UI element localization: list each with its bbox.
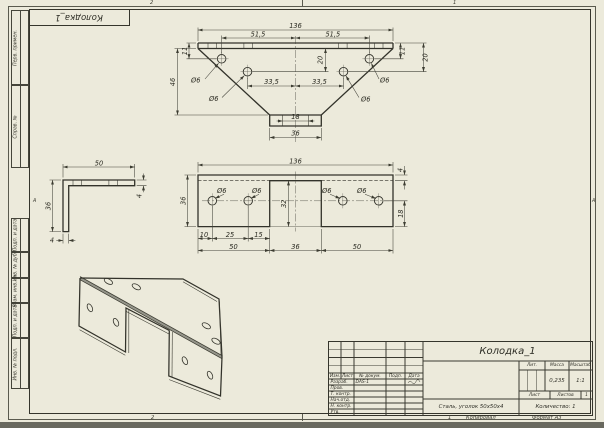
col-docnum: № докум. <box>354 373 386 379</box>
part-name: Колодка_1 <box>423 342 592 361</box>
dim-label: 25 <box>226 231 234 239</box>
row-tkontr: Т. контр. <box>331 392 351 397</box>
dim-label: 20 <box>317 56 325 64</box>
dim-label: 50 <box>353 243 361 251</box>
hole-diameter-label: Ø6 <box>216 187 226 195</box>
row-nachotd: Нач.отд. <box>331 398 351 403</box>
mass-value: 0,235 <box>545 370 569 391</box>
row-utv: Утв. <box>331 410 340 415</box>
hole-diameter-label: Ø6 <box>356 187 366 195</box>
dim-label: 36 <box>291 243 299 251</box>
dim-label: 11 <box>181 47 189 55</box>
dim-label: 15 <box>254 231 262 239</box>
dim-label: 20 <box>422 53 430 61</box>
front-view: 136 4 18 36 32 10 25 15 50 36 50 Ø6 Ø6 Ø… <box>179 157 407 253</box>
dim-label: 18 <box>397 210 405 218</box>
scale-label: Масштаб <box>569 361 592 370</box>
col-data: Дата <box>405 373 423 379</box>
col-podp: Подп. <box>386 373 405 379</box>
quantity: Количество: 1 <box>519 399 592 415</box>
dim-label: 136 <box>289 22 302 30</box>
hole-diameter-label: Ø6 <box>251 187 261 195</box>
designer-name: DAS-1 <box>356 380 370 385</box>
row-nkontr: Н. контр. <box>331 404 352 409</box>
dim-label: 33,5 <box>312 78 327 86</box>
dim-label: 51,5 <box>251 30 266 38</box>
drawing-sheet: 2 1 2 А А Колодка_1 Перв. примен. Справ.… <box>0 0 604 422</box>
zone-label-bottom-right: 1 <box>448 415 451 421</box>
material: Сталь, уголок 50х50х4 <box>423 399 519 415</box>
row-prov: Пров. <box>331 386 344 391</box>
sheets-value: 1 <box>581 391 592 399</box>
mass-label: Масса <box>545 361 569 370</box>
hole-diameter-label: Ø6 <box>379 76 389 84</box>
dim-label: 18 <box>291 113 299 121</box>
dim-label: 4 <box>50 237 54 245</box>
lit-label: Лит. <box>519 361 545 370</box>
hole-diameter-label: Ø6 <box>321 187 331 195</box>
copied-label: Копировал <box>466 415 496 421</box>
scale-value: 1:1 <box>569 370 592 391</box>
dim-label: 50 <box>229 243 237 251</box>
dim-label: 4 <box>136 194 144 198</box>
isometric-view <box>79 277 222 400</box>
col-izm: Изм. <box>329 373 341 379</box>
sheet-label: Лист <box>519 391 550 399</box>
side-view: 50 4 36 4 <box>45 159 147 244</box>
title-block: Изм. Лист № докум. Подп. Дата Разраб. Пр… <box>328 341 593 416</box>
dim-label: 36 <box>45 202 53 210</box>
dim-label: 33,5 <box>264 78 279 86</box>
top-view: 136 51,5 51,5 11 46 11 20 20 33,5 33,5 1… <box>169 22 430 143</box>
dim-label: 36 <box>179 197 187 205</box>
hole-diameter-label: Ø6 <box>208 95 218 103</box>
dim-label: 10 <box>200 231 208 239</box>
hole-diameter-label: Ø6 <box>190 76 200 84</box>
bend-band <box>80 278 222 357</box>
row-razrab: Разраб. <box>331 380 348 385</box>
col-list: Лист <box>341 373 354 379</box>
signature-scribble <box>408 380 420 384</box>
hole-diameter-label: Ø6 <box>360 95 370 103</box>
format-label: Формат А3 <box>532 415 562 421</box>
dim-label: 32 <box>280 200 288 208</box>
dim-label: 4 <box>397 168 405 172</box>
dim-label: 46 <box>169 78 177 86</box>
dim-label: 50 <box>95 159 103 167</box>
dim-label: 11 <box>399 47 407 55</box>
sheets-label: Листов <box>550 391 581 399</box>
dim-label: 51,5 <box>325 30 340 38</box>
dim-label: 36 <box>291 130 299 138</box>
dim-label: 136 <box>289 157 302 165</box>
